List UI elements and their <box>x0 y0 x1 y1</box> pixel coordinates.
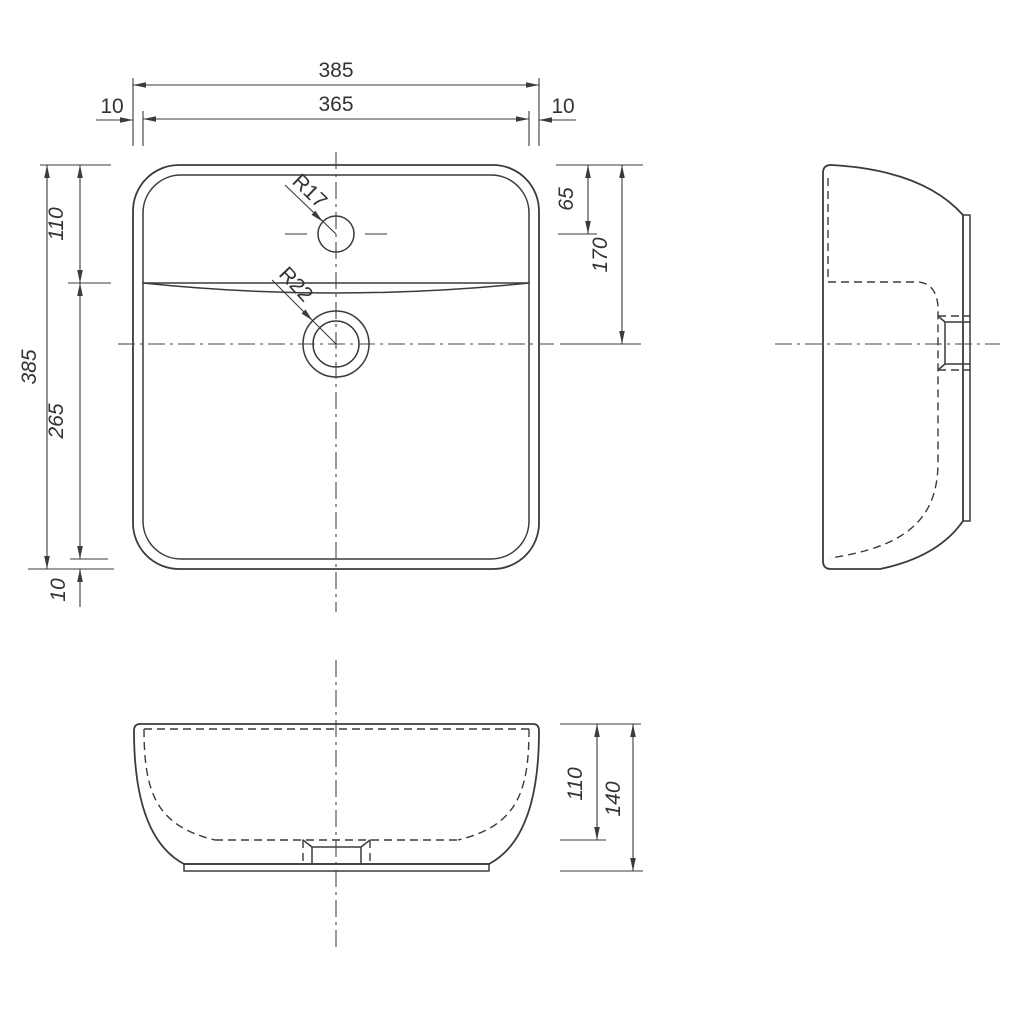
dimensions-left: 385 110 265 10 <box>18 165 114 607</box>
front-view <box>134 660 539 950</box>
dim-label-margin-left: 10 <box>100 95 123 118</box>
front-hidden-bowl-right <box>458 729 529 840</box>
front-hidden-bowl-left <box>144 729 215 840</box>
dim-label-margin-bottom: 10 <box>47 578 70 602</box>
dim-label-overflow-to-bottom: 265 <box>45 403 68 439</box>
dim-label-drain-radius: R22 <box>274 263 317 307</box>
dim-label-drain-offset: 170 <box>589 237 612 272</box>
dim-label-faucet-offset: 65 <box>555 187 578 211</box>
dim-label-front-inner-depth: 110 <box>564 767 587 801</box>
dimensions-front: 110 140 <box>560 724 643 871</box>
side-view <box>775 165 1000 569</box>
drawing-canvas: 385 365 10 10 385 110 265 10 65 170 R17 … <box>0 0 1024 1024</box>
side-drain-boss <box>938 316 970 370</box>
dimensions-right-of-plan: 65 170 <box>555 165 643 344</box>
dim-label-overall-width: 385 <box>318 59 353 82</box>
side-hidden-drain-boss <box>938 316 970 370</box>
dim-label-faucet-radius: R17 <box>288 170 332 213</box>
plan-view <box>118 152 554 612</box>
dim-label-inner-width: 365 <box>318 93 353 116</box>
side-back-flange <box>963 215 970 521</box>
drawing-page: 385 365 10 10 385 110 265 10 65 170 R17 … <box>0 0 1024 1024</box>
dim-label-top-to-overflow: 110 <box>45 207 68 241</box>
radius-leaders: R17 R22 <box>272 170 336 344</box>
dim-label-margin-right: 10 <box>551 95 574 118</box>
dim-label-front-overall-height: 140 <box>602 781 625 816</box>
dim-label-overall-height: 385 <box>18 349 41 384</box>
dimensions-top: 385 365 10 10 <box>96 59 576 146</box>
side-hidden-bowl-profile <box>828 282 938 558</box>
front-base-plate <box>184 864 489 871</box>
